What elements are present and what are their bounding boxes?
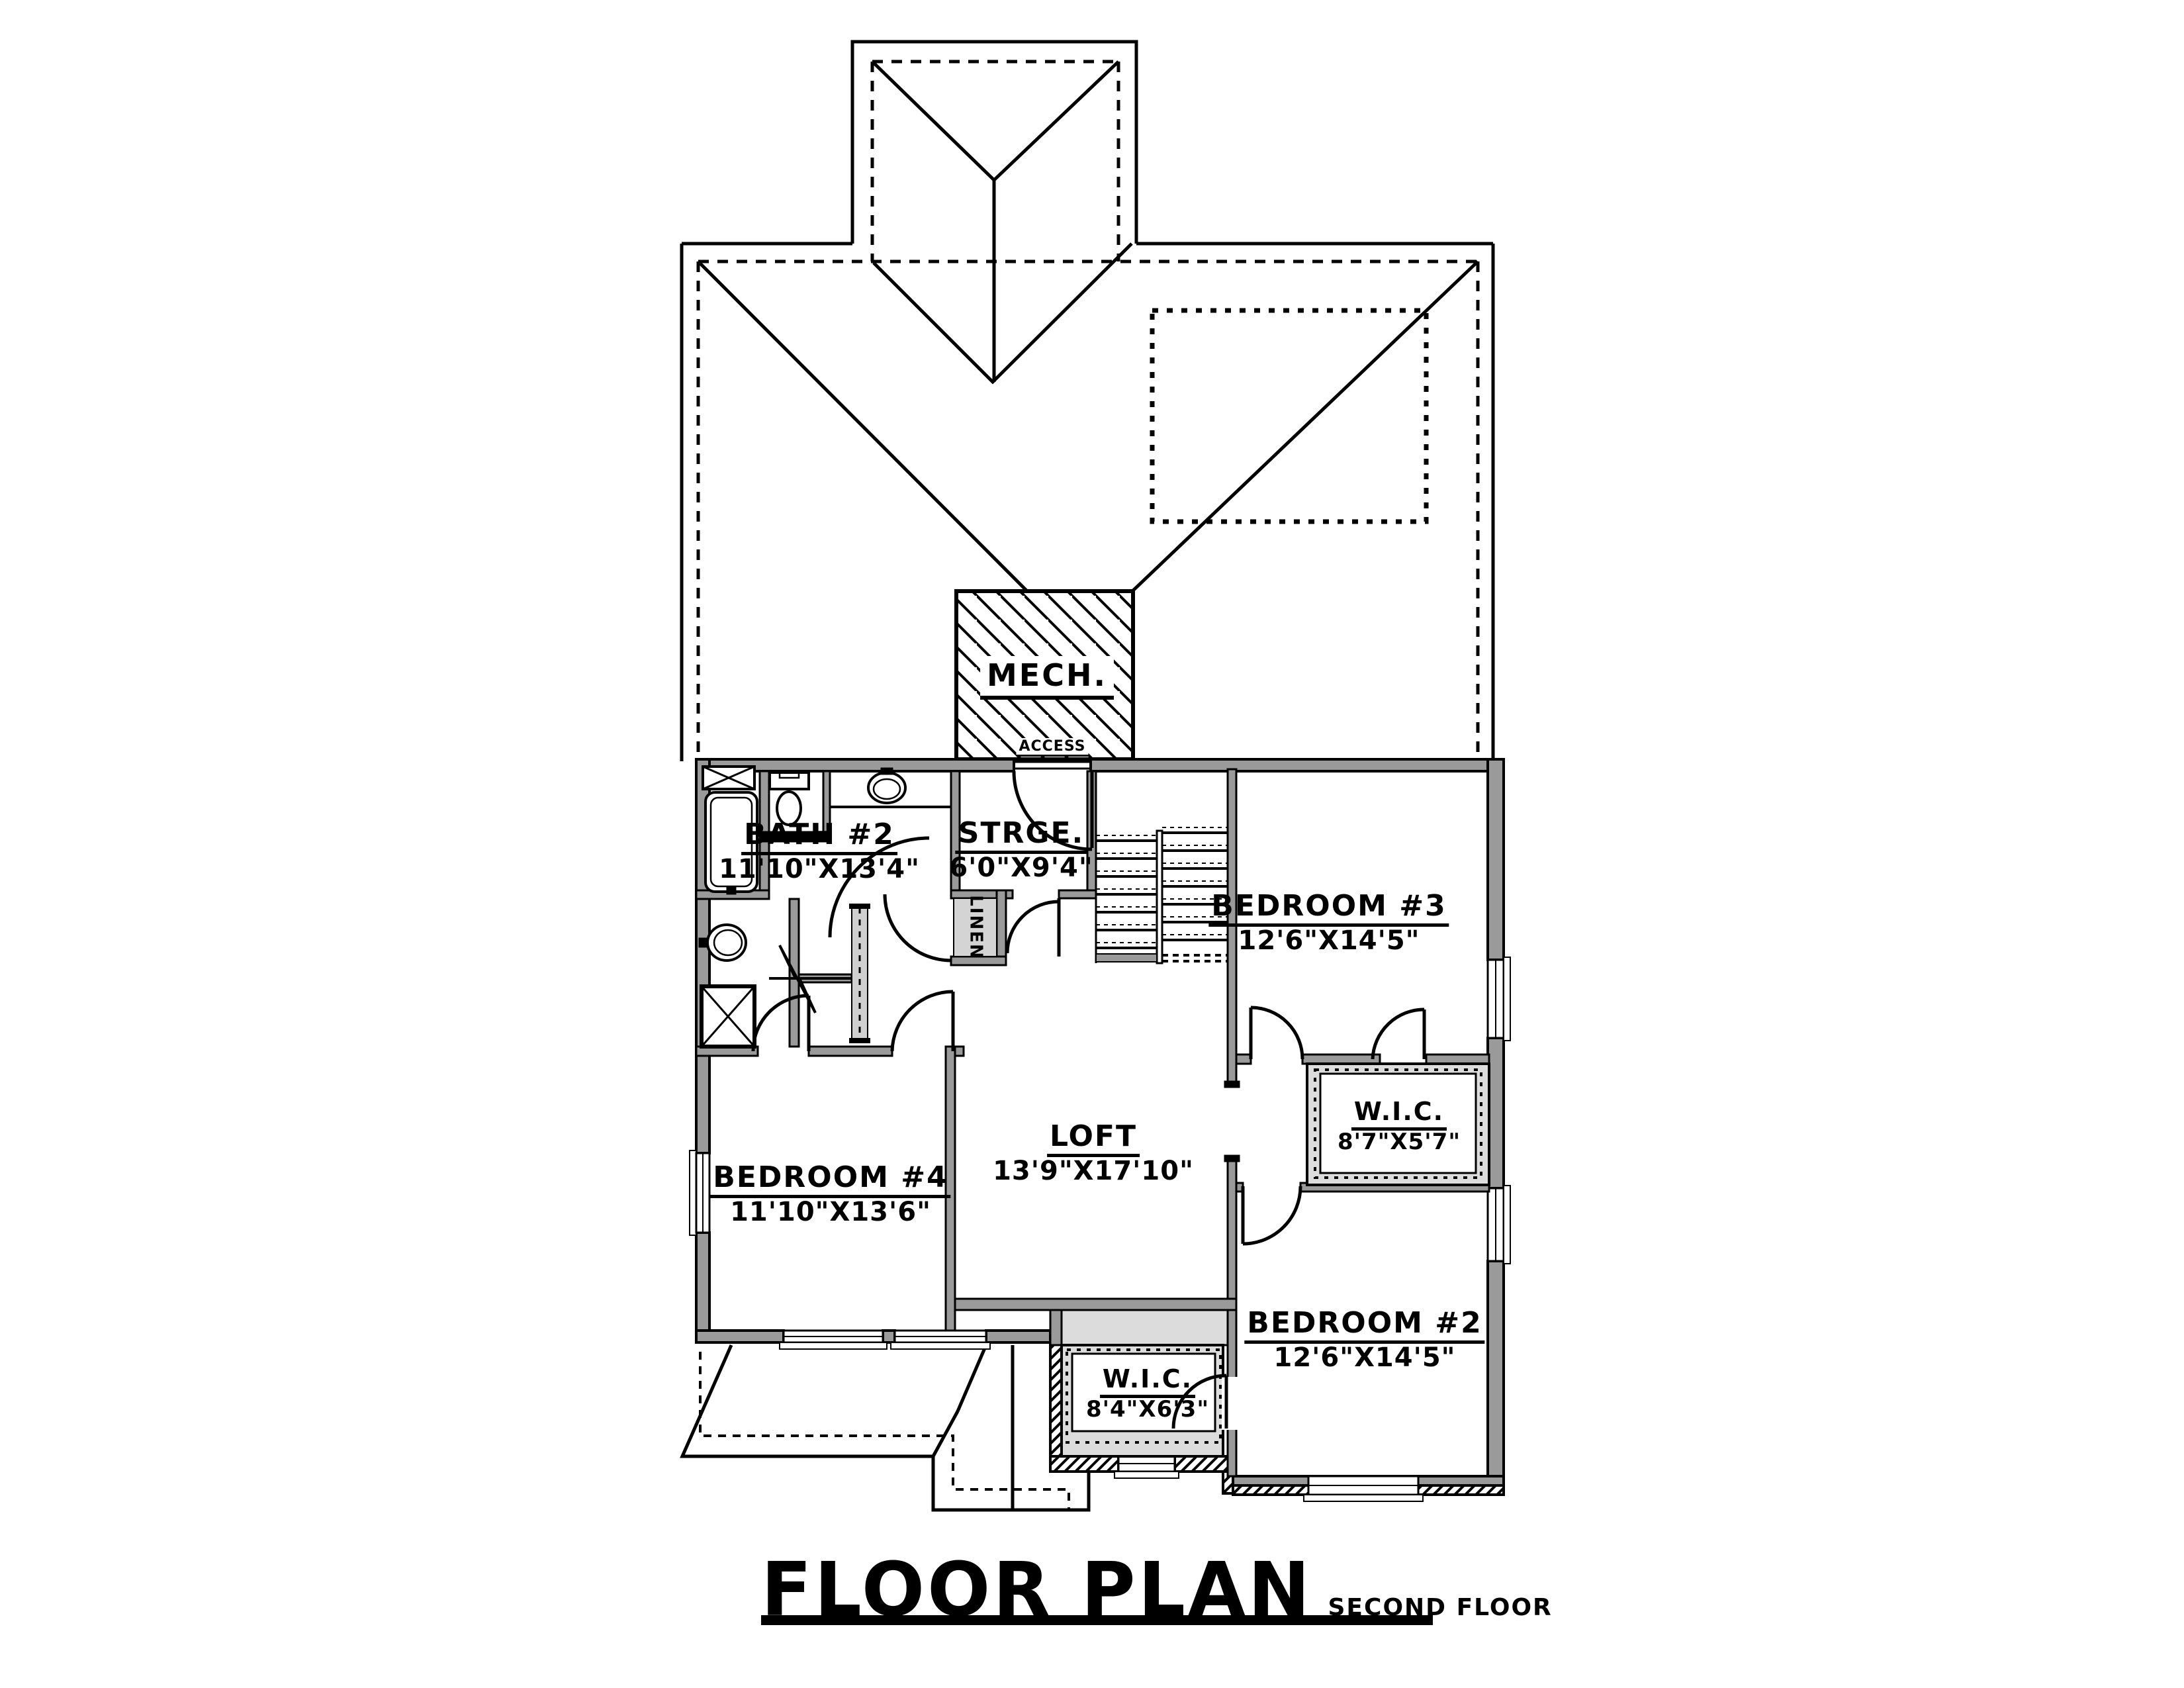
wall-cap bbox=[1225, 1082, 1239, 1087]
hall-door bbox=[885, 894, 951, 961]
loft-label: LOFT 13'9"X17'10" bbox=[993, 1121, 1194, 1185]
stair-treads-left bbox=[1096, 841, 1157, 948]
strge-bottom-wall-b bbox=[1059, 890, 1096, 898]
porch-roof-valleys bbox=[933, 1345, 1013, 1510]
bedroom2-dims: 12'6"X14'5" bbox=[1273, 1342, 1455, 1373]
floor-plan-sheet: MECH. ACCESS BATH #2 11'10"X13'4" STRGE.… bbox=[0, 0, 2184, 1688]
bedroom2-right-window bbox=[1488, 1186, 1510, 1264]
bedroom4-label: BEDROOM #4 11'10"X13'6" bbox=[710, 1162, 950, 1226]
loft-dims: 13'9"X17'10" bbox=[993, 1156, 1194, 1186]
wic2-name: W.I.C. bbox=[1100, 1366, 1195, 1398]
bedroom2-name: BEDROOM #2 bbox=[1244, 1308, 1484, 1344]
strge-dims: 6'0"X9'4" bbox=[949, 853, 1093, 883]
bath2-label: BATH #2 11'10"X13'4" bbox=[719, 820, 920, 883]
laundry-chute bbox=[703, 767, 754, 789]
stair-nosing-left bbox=[1096, 835, 1157, 943]
wic3-door bbox=[1373, 1009, 1424, 1059]
stair-stringer bbox=[1157, 831, 1162, 963]
bed3-bottom-wall-a bbox=[1236, 1055, 1251, 1064]
title-underline bbox=[761, 1615, 1433, 1625]
linen-closet-label: LINEN bbox=[966, 895, 984, 960]
wic2-dims: 8'4"X6'3" bbox=[1086, 1396, 1209, 1423]
wic3-name: W.I.C. bbox=[1351, 1099, 1447, 1131]
bedroom4-bottom-window-2 bbox=[891, 1331, 990, 1349]
mech-room-name: MECH. bbox=[980, 656, 1114, 700]
bedroom3-door bbox=[1251, 1008, 1302, 1059]
bedroom4-door bbox=[892, 992, 953, 1051]
bedroom2-label: BEDROOM #2 12'6"X14'5" bbox=[1244, 1308, 1484, 1372]
loft-bottom-wall bbox=[955, 1299, 1236, 1310]
linen-right-wall bbox=[997, 890, 1006, 965]
wic2-bottom-window bbox=[1115, 1456, 1179, 1478]
garage-roof-outline bbox=[682, 1345, 933, 1456]
roof-ridge-valleys bbox=[698, 62, 1478, 592]
roof-dashed-square bbox=[1152, 310, 1426, 522]
wic2-connector-wall bbox=[1050, 1310, 1062, 1345]
bedroom3-dims: 12'6"X14'5" bbox=[1238, 925, 1420, 956]
attic-strip bbox=[1062, 1310, 1228, 1345]
loft-name: LOFT bbox=[1047, 1121, 1140, 1157]
wic2-label: W.I.C. 8'4"X6'3" bbox=[1086, 1366, 1209, 1422]
strge-name: STRGE. bbox=[956, 818, 1087, 854]
shower bbox=[702, 986, 754, 1047]
bedroom3-name: BEDROOM #3 bbox=[1208, 891, 1449, 927]
bedroom4-name: BEDROOM #4 bbox=[710, 1162, 950, 1198]
bedroom2-door bbox=[1243, 1186, 1300, 1244]
strge-door bbox=[1007, 898, 1059, 957]
bath2-name: BATH #2 bbox=[741, 820, 897, 855]
wc-door bbox=[753, 996, 809, 1051]
bath2-dims: 11'10"X13'4" bbox=[719, 854, 920, 884]
bed3-bottom-wall-b bbox=[1302, 1055, 1380, 1064]
bedroom3-right-window bbox=[1488, 957, 1510, 1041]
bedroom3-label: BEDROOM #3 12'6"X14'5" bbox=[1208, 891, 1449, 955]
bed3-bottom-wall-c bbox=[1426, 1055, 1489, 1064]
attic-access-text: ACCESS bbox=[1016, 738, 1088, 757]
bedroom4-bottom-window-1 bbox=[780, 1331, 887, 1349]
bedroom4-left-window bbox=[690, 1150, 709, 1235]
wic2-door-opening bbox=[1222, 1377, 1238, 1430]
wall-cap bbox=[1225, 1156, 1239, 1161]
bedroom4-dims: 11'10"X13'6" bbox=[730, 1197, 931, 1227]
stair-rail bbox=[1096, 954, 1157, 962]
wic3-label: W.I.C. 8'7"X5'7" bbox=[1338, 1099, 1461, 1154]
staircase bbox=[1096, 771, 1228, 963]
wic3-dims: 8'7"X5'7" bbox=[1338, 1129, 1461, 1155]
stair-break-line bbox=[1162, 955, 1228, 961]
porch-roofs bbox=[682, 1345, 1089, 1510]
mech-room-label: MECH. bbox=[980, 659, 1114, 691]
vanity-sink-top bbox=[830, 768, 951, 807]
attic-access-label: ACCESS bbox=[1016, 739, 1088, 754]
strge-label: STRGE. 6'0"X9'4" bbox=[949, 818, 1093, 882]
bedroom2-bottom-window bbox=[1304, 1476, 1423, 1501]
bed4-top-wall-b bbox=[809, 1047, 892, 1056]
